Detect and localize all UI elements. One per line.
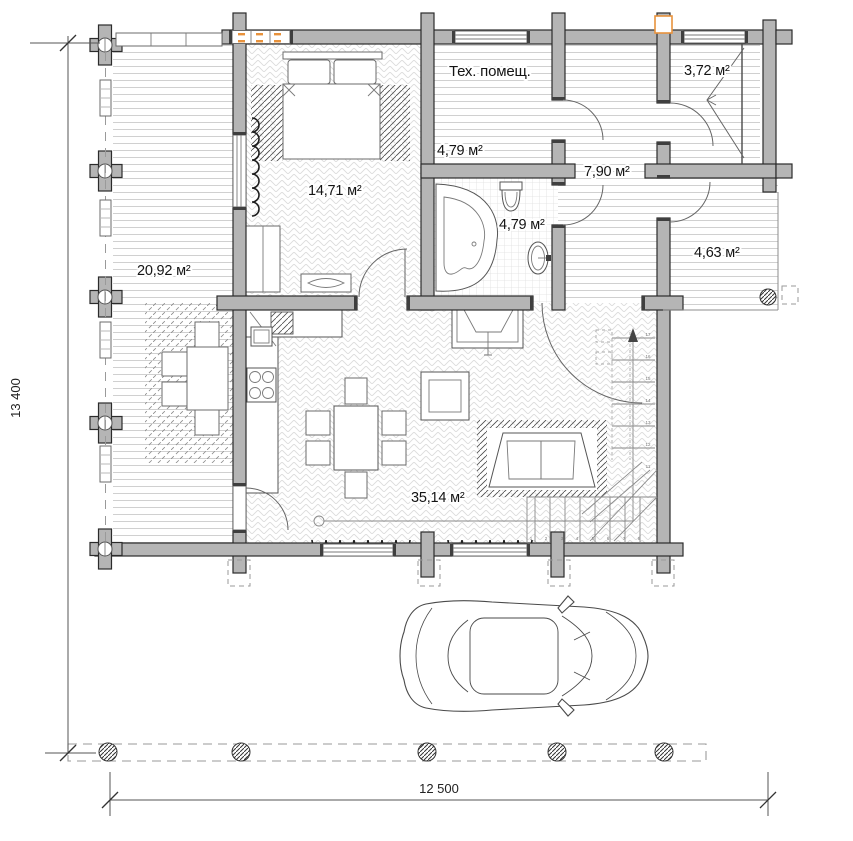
dining-table xyxy=(334,406,378,470)
window-living-right xyxy=(450,544,530,556)
tech-room-name: Тех. помещ. xyxy=(449,63,531,80)
floor-plan: 17 16 15 14 13 12 11 1 2 3 4 5 6 7 8 xyxy=(0,0,853,841)
shower-room-floor xyxy=(663,37,747,171)
floor-plan-page: 17 16 15 14 13 12 11 1 2 3 4 5 6 7 8 xyxy=(0,0,853,841)
terrace-furniture xyxy=(145,303,233,463)
terrace-chair xyxy=(195,322,219,347)
porch-area: 4,63 м² xyxy=(694,245,740,261)
dimension-width-label: 12 500 xyxy=(419,781,459,796)
kitchen-counter-left xyxy=(246,337,278,493)
terrace-table xyxy=(187,347,228,410)
shower-room-area: 3,72 м² xyxy=(684,63,730,79)
floors xyxy=(113,37,778,549)
dining-chair xyxy=(306,441,330,465)
terrace-chair xyxy=(162,352,187,376)
bed-rug-left xyxy=(251,85,283,161)
toilet-tank xyxy=(500,182,522,190)
pile-strip xyxy=(68,743,706,761)
kitchen-drainer xyxy=(271,312,293,334)
terrace-floor xyxy=(113,40,233,549)
bed-headboard xyxy=(283,52,382,59)
wall-tech-hall-a xyxy=(552,13,565,100)
dining-chair xyxy=(306,411,330,435)
step-number: 14 xyxy=(645,398,651,403)
tech-room-area: 4,79 м² xyxy=(437,143,483,159)
dimension-height-label: 13 400 xyxy=(8,378,23,418)
dining-chair xyxy=(345,472,367,498)
window-tech xyxy=(452,31,530,43)
wall-pier-stub xyxy=(421,532,434,577)
sink-tap-base xyxy=(546,255,551,261)
step-number: 16 xyxy=(645,354,651,359)
wall-stub-right-top xyxy=(776,30,792,44)
window-shower xyxy=(681,31,748,43)
pile-strip-columns xyxy=(99,743,673,761)
pile-strip-outline xyxy=(68,744,706,761)
car-top-view xyxy=(400,596,648,716)
wall-living-top-c xyxy=(642,296,683,310)
armchair xyxy=(421,372,469,420)
foundation-piers xyxy=(228,560,674,586)
step-number: 12 xyxy=(645,442,651,447)
car-body xyxy=(400,601,648,712)
chimney xyxy=(655,16,672,33)
wall-living-top-a xyxy=(217,296,357,310)
terrace-chair xyxy=(195,410,219,435)
bedroom-area: 14,71 м² xyxy=(308,183,362,199)
dining-chair xyxy=(382,411,406,435)
bathroom-area: 4,79 м² xyxy=(499,217,545,233)
window-living-left xyxy=(320,544,396,556)
porch-floor xyxy=(663,171,778,310)
living-area: 35,14 м² xyxy=(411,490,465,506)
terrace-chair xyxy=(162,382,187,406)
dining-chair xyxy=(382,441,406,465)
step-number: 13 xyxy=(645,420,651,425)
window-bedroom-french xyxy=(233,132,246,210)
pile-column-hatch xyxy=(760,289,776,305)
glazing-strip-floor xyxy=(747,40,760,171)
bed-pillow xyxy=(288,60,330,84)
wall-bath-hall xyxy=(552,225,565,310)
bed-body xyxy=(283,84,380,159)
terrace-top-railing xyxy=(116,33,222,46)
step-number: 15 xyxy=(645,376,651,381)
step-number: 17 xyxy=(645,332,651,337)
wall-living-top-b xyxy=(407,296,533,310)
bed-rug-right xyxy=(380,85,410,161)
wall-hall-right-c xyxy=(657,218,670,573)
dining-chair xyxy=(345,378,367,404)
hall-area: 7,90 м² xyxy=(584,164,630,180)
bed-pillow xyxy=(334,60,376,84)
wall-stub-right-mid xyxy=(776,164,792,178)
window-bedroom-top xyxy=(229,31,293,44)
wall-mid-a xyxy=(421,164,575,178)
pier-dashed xyxy=(782,286,798,304)
wall-bedroom-tech xyxy=(421,13,434,310)
step-number: 11 xyxy=(646,464,651,469)
terrace-area: 20,92 м² xyxy=(137,263,191,279)
